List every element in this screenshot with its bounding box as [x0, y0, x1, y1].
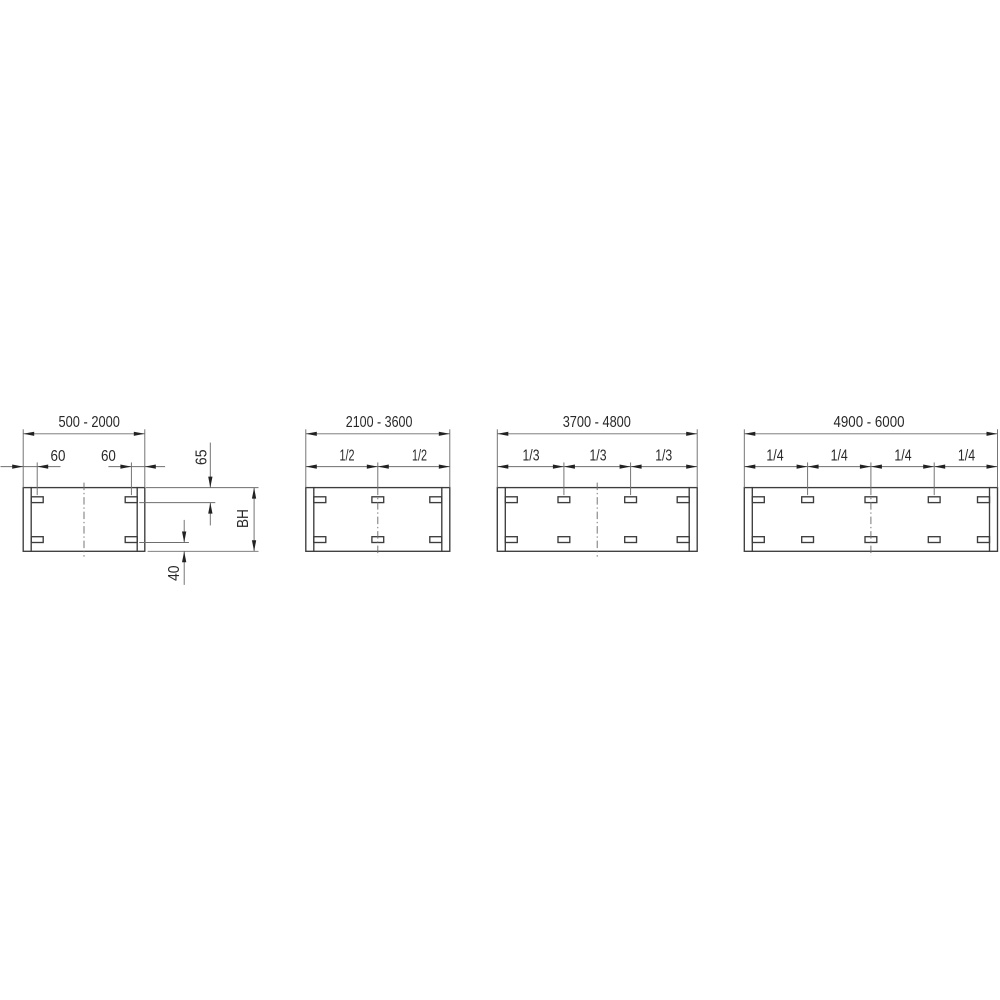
svg-text:1/3: 1/3 [590, 448, 607, 465]
svg-text:1/2: 1/2 [340, 448, 355, 465]
svg-text:60: 60 [51, 448, 66, 465]
svg-text:1/3: 1/3 [655, 448, 672, 465]
svg-text:BH: BH [235, 509, 252, 528]
svg-text:1/4: 1/4 [831, 448, 848, 465]
svg-text:1/4: 1/4 [894, 448, 911, 465]
svg-text:1/3: 1/3 [523, 448, 540, 465]
svg-text:1/4: 1/4 [766, 448, 783, 465]
svg-text:500 - 2000: 500 - 2000 [59, 414, 120, 431]
svg-text:3700 - 4800: 3700 - 4800 [563, 414, 631, 431]
svg-text:2100 - 3600: 2100 - 3600 [346, 414, 413, 431]
svg-text:40: 40 [166, 565, 183, 581]
svg-text:4900 - 6000: 4900 - 6000 [834, 414, 905, 431]
svg-text:1/2: 1/2 [412, 448, 427, 465]
svg-text:65: 65 [193, 449, 210, 465]
svg-text:60: 60 [101, 448, 116, 465]
svg-text:1/4: 1/4 [958, 448, 975, 465]
